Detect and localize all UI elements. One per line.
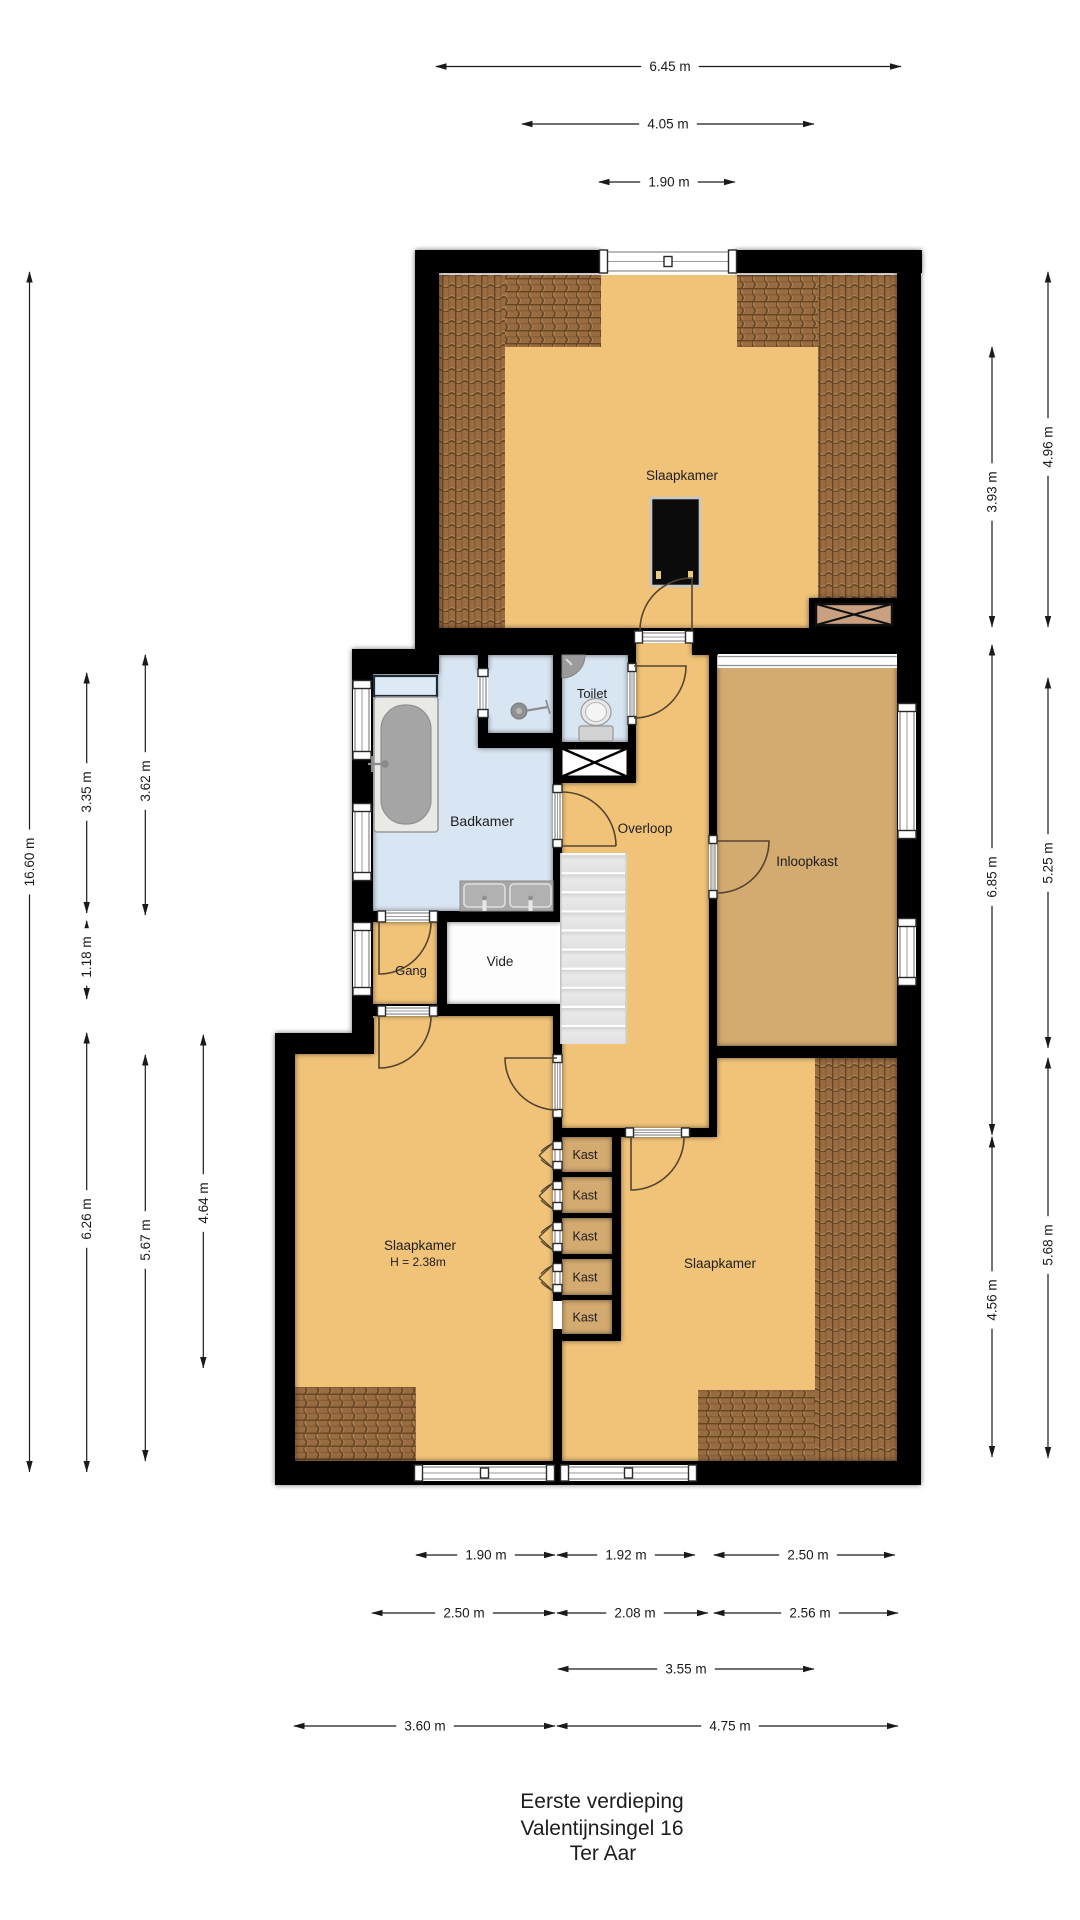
svg-text:Gang: Gang (395, 963, 427, 978)
svg-text:5.25 m: 5.25 m (1041, 842, 1056, 883)
svg-text:4.56 m: 4.56 m (985, 1279, 1000, 1320)
svg-text:2.08 m: 2.08 m (614, 1606, 655, 1621)
svg-text:H = 2.38m: H = 2.38m (390, 1255, 446, 1269)
svg-text:Inloopkast: Inloopkast (776, 854, 838, 869)
svg-text:Eerste verdieping: Eerste verdieping (520, 1790, 683, 1813)
svg-text:5.67 m: 5.67 m (138, 1219, 153, 1260)
svg-text:Kast: Kast (572, 1311, 598, 1325)
svg-text:2.50 m: 2.50 m (787, 1548, 828, 1563)
svg-text:5.68 m: 5.68 m (1041, 1224, 1056, 1265)
svg-text:4.75 m: 4.75 m (709, 1719, 750, 1734)
svg-text:Ter Aar: Ter Aar (570, 1842, 637, 1865)
svg-text:Slaapkamer: Slaapkamer (384, 1238, 457, 1253)
svg-text:Kast: Kast (572, 1230, 598, 1244)
svg-text:Toilet: Toilet (577, 686, 608, 701)
svg-text:3.93 m: 3.93 m (985, 471, 1000, 512)
svg-text:3.62 m: 3.62 m (138, 760, 153, 801)
svg-text:Kast: Kast (572, 1189, 598, 1203)
svg-text:1.90 m: 1.90 m (648, 175, 689, 190)
svg-text:1.90 m: 1.90 m (465, 1548, 506, 1563)
svg-text:2.50 m: 2.50 m (443, 1606, 484, 1621)
svg-text:2.56 m: 2.56 m (789, 1606, 830, 1621)
svg-text:Kast: Kast (572, 1271, 598, 1285)
svg-text:3.55 m: 3.55 m (665, 1662, 706, 1677)
svg-text:Vide: Vide (487, 954, 514, 969)
svg-text:1.18 m: 1.18 m (79, 936, 94, 977)
svg-text:16.60 m: 16.60 m (22, 838, 37, 887)
svg-text:6.45 m: 6.45 m (649, 59, 690, 74)
svg-text:Kast: Kast (572, 1148, 598, 1162)
svg-text:4.64 m: 4.64 m (196, 1182, 211, 1223)
svg-text:Slaapkamer: Slaapkamer (684, 1256, 757, 1271)
svg-text:4.96 m: 4.96 m (1041, 426, 1056, 467)
svg-text:Valentijnsingel 16: Valentijnsingel 16 (520, 1817, 683, 1840)
svg-text:Overloop: Overloop (618, 821, 673, 836)
svg-text:Badkamer: Badkamer (450, 813, 514, 829)
svg-text:6.26 m: 6.26 m (79, 1198, 94, 1239)
svg-text:Slaapkamer: Slaapkamer (646, 468, 719, 483)
svg-text:3.35 m: 3.35 m (79, 771, 94, 812)
svg-text:3.60 m: 3.60 m (404, 1719, 445, 1734)
svg-text:1.92 m: 1.92 m (605, 1548, 646, 1563)
svg-text:4.05 m: 4.05 m (647, 117, 688, 132)
svg-text:6.85 m: 6.85 m (985, 856, 1000, 897)
